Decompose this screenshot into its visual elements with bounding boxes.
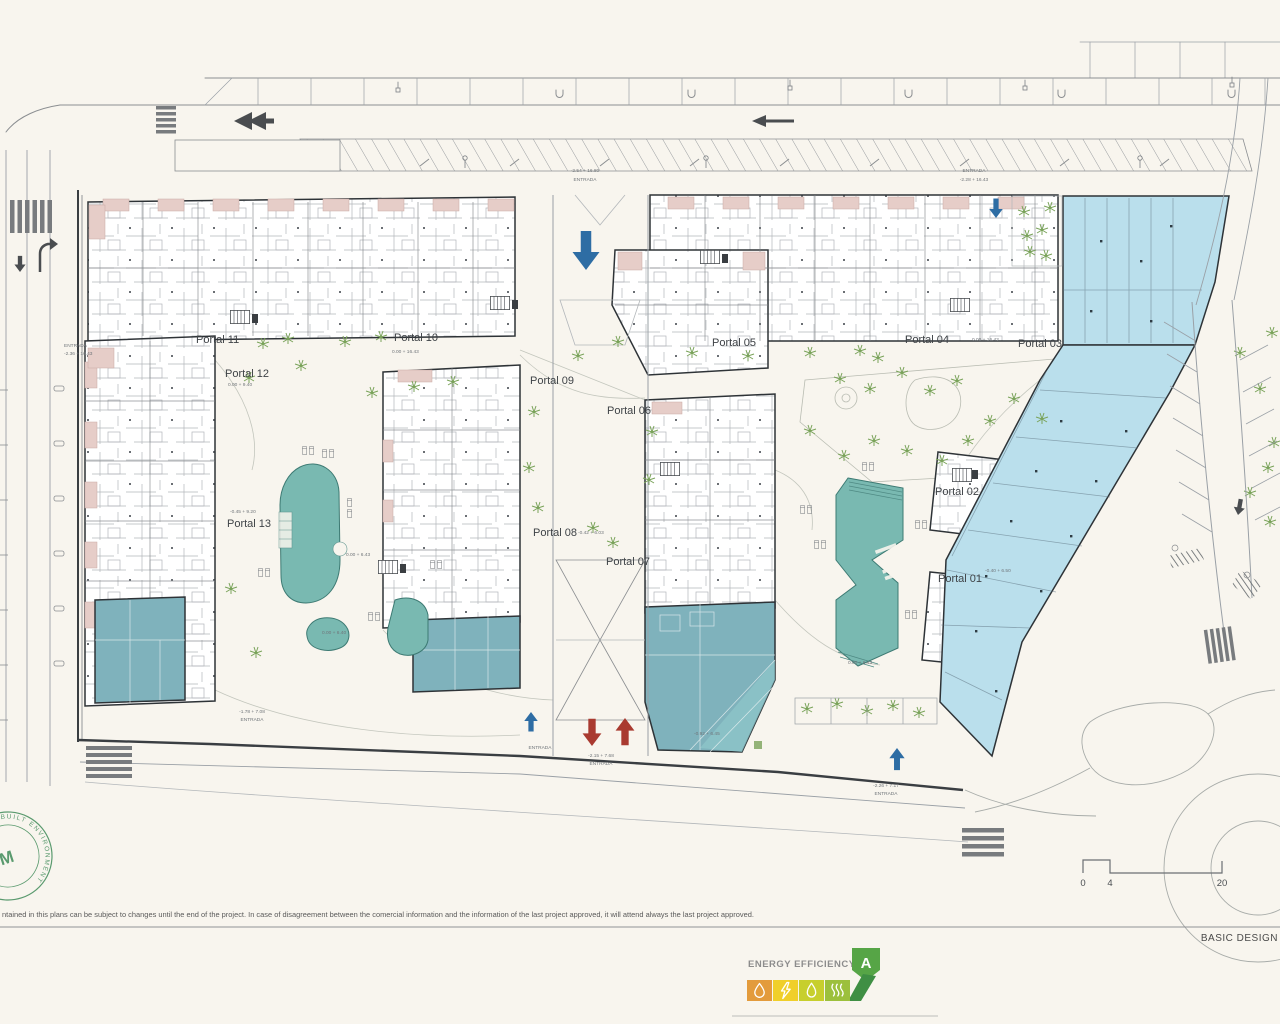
entrada-bottom-left: ENTRADA (241, 717, 265, 723)
ramp-arrow-down-icon (583, 719, 602, 746)
scale-tick-0: 0 (1080, 878, 1085, 889)
exit-arrow-bottomright-icon (889, 748, 904, 770)
site-plan-canvas: Portal 11 Portal 10 Portal 12 Portal 09 … (0, 0, 1280, 1024)
elevation-pool-small: 0.00 + 6.40 (322, 630, 346, 636)
commercial-block-top (1063, 196, 1229, 345)
energy-badge-ribbon (848, 974, 876, 1001)
crosswalk-bottom-left (86, 746, 132, 778)
portal-03-label: Portal 03 (1018, 338, 1062, 350)
scale-tick-20: 20 (1217, 878, 1228, 889)
portal-07-label: Portal 07 (606, 556, 650, 568)
ramp-arrow-up-icon (616, 718, 635, 745)
stage-label: BASIC DESIGN (1201, 933, 1278, 944)
portal-13-label: Portal 13 (227, 518, 271, 530)
portal-01-label: Portal 01 (938, 573, 982, 585)
elevation-bottom-left: -1.78 + 7.08 (239, 709, 265, 715)
entrance-arrow-top-icon (573, 231, 600, 270)
crosswalk-right (1204, 626, 1236, 663)
crosswalk-top-left (156, 106, 176, 134)
elevation-commercial-center: -0.92 + 6.45 (694, 731, 720, 737)
portal-09-label: Portal 09 (530, 375, 574, 387)
exit-arrow-bottomleft-icon (524, 712, 538, 732)
entrada-bottom-center-2: ENTRADA (590, 761, 614, 767)
portal-02-label: Portal 02 (935, 486, 979, 498)
scale-tick-4: 4 (1107, 878, 1112, 889)
certification-stamp: BUILT ENVIRONMENT M (0, 801, 63, 912)
energy-badge-title: ENERGY EFFICIENCY (748, 959, 856, 970)
elevation-portal-03: 0.00 + 16.43 (972, 337, 999, 343)
elevation-top-center: -2.54 + 16.80 (571, 168, 600, 174)
energy-rating-letter: A (861, 955, 872, 972)
elevation-bottom-right: -2.26 + 7.17 (873, 783, 899, 789)
crosswalk-bottom-right (962, 828, 1004, 857)
entrada-bottom-center-1: ENTRADA (529, 745, 553, 751)
traffic-island (1082, 703, 1214, 785)
portal-10-label: Portal 10 (394, 332, 438, 344)
scale-bar: 0 4 20 (1080, 860, 1227, 889)
portal-06-label: Portal 06 (607, 405, 651, 417)
road-arrow-left-icon (752, 115, 766, 127)
portal-08-label: Portal 08 (533, 527, 577, 539)
elevation-portal-08: -0.42 + 6.03 (578, 530, 604, 536)
elevation-pool-left: 0.00 + 6.43 (346, 552, 370, 558)
building-portals-09-08 (383, 365, 520, 628)
wheel-stop-icons (556, 90, 1235, 98)
elevation-bottom-center: -2.15 + 7.68 (588, 753, 614, 759)
elevation-portal-10: 0.00 + 16.43 (392, 349, 419, 355)
dark-unit-center (645, 602, 775, 752)
footer: ntained in this plans can be subject to … (0, 910, 1280, 1016)
dark-unit-middle (413, 616, 520, 692)
pool-main-right (836, 478, 903, 666)
turn-arrow-icon (40, 244, 50, 272)
lane-arrow-right-road-icon (1233, 498, 1247, 516)
entrada-top-right: ENTRADA (963, 168, 987, 174)
building-portals-11-10 (88, 197, 515, 341)
portal-11-label: Portal 11 (196, 334, 239, 346)
apartment-buildings (85, 195, 1058, 706)
elevation-pool-right: 0.00 + 6.43 (848, 660, 872, 666)
entrada-bottom-right: ENTRADA (875, 791, 899, 797)
top-parking-area (6, 42, 1280, 134)
no-parking-hatch (175, 139, 1252, 171)
portal-12-label: Portal 12 (225, 368, 269, 380)
elevation-portal-13: -0.45 + 9.20 (230, 509, 256, 515)
roundabout-inner (1211, 821, 1280, 915)
elevation-portal-01: -0.40 + 6.50 (985, 568, 1011, 574)
crosswalk-left (10, 200, 52, 233)
dark-unit-left (95, 597, 185, 703)
lamp-post-icons (396, 77, 1234, 92)
portal-05-label: Portal 05 (712, 337, 756, 349)
energy-efficiency-badge: ENERGY EFFICIENCY A (747, 948, 880, 1001)
elevation-top-right: -2.28 + 16.43 (960, 177, 989, 183)
lane-arrow-left-road-icon (14, 256, 25, 272)
stamp-center-text: M (0, 847, 16, 869)
entrada-left: ENTRADA (64, 343, 88, 349)
commercial-block-strip (940, 345, 1195, 756)
site-boundary (78, 190, 82, 742)
pool-middle (388, 598, 429, 655)
disclaimer-text: ntained in this plans can be subject to … (2, 910, 754, 919)
elevation-left: -2.36 + 16.43 (64, 351, 93, 357)
elevation-portal-12: 0.00 + 9.40 (228, 382, 252, 388)
portal-04-label: Portal 04 (905, 334, 949, 346)
entrada-top-center: ENTRADA (574, 177, 598, 183)
